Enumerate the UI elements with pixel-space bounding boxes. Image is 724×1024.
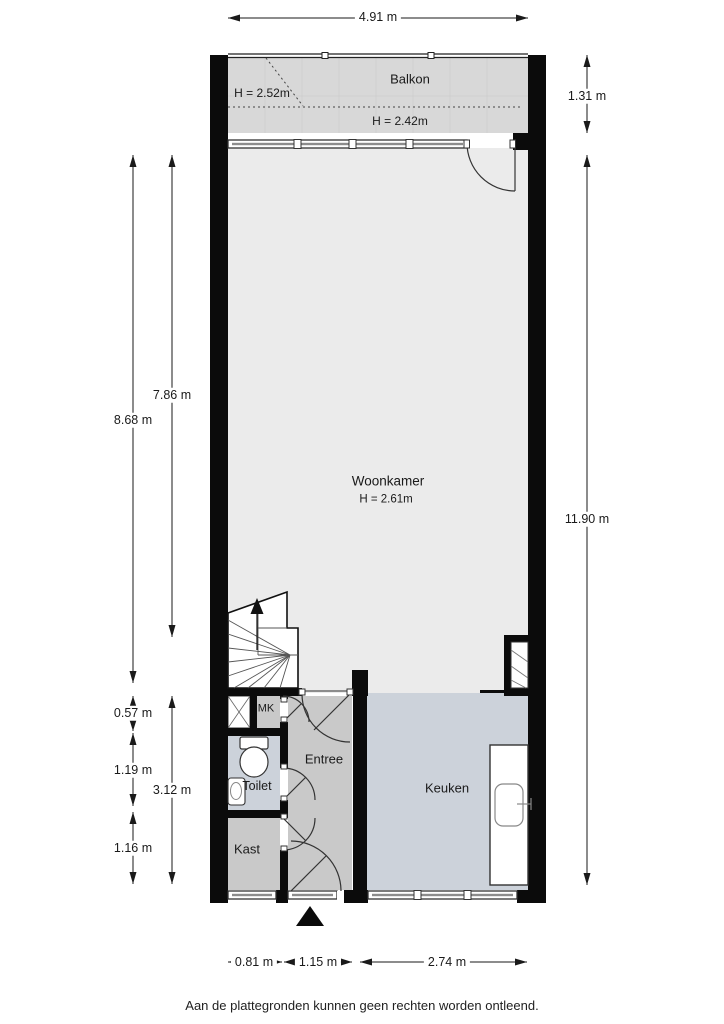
dim-entree-width: 1.15 m [295,955,341,970]
room-label-balkon: Balkon [390,73,430,86]
window-top [228,140,467,149]
dim-lower-total: 3.12 m [149,783,195,798]
shaft-hatch [511,642,528,688]
window-bottom-kast [228,891,276,899]
floor-plan-canvas [0,0,724,1024]
balkon-height-upper: H = 2.52m [234,87,290,99]
dim-kast-width: 0.81 m [231,955,277,970]
understair-niche [228,696,250,728]
wall-mk-divider [250,693,257,728]
wall-bottom-b [276,890,288,903]
window-bottom-keuken [368,891,517,900]
dim-left-total: 8.68 m [110,413,156,428]
room-label-entree: Entree [305,753,343,766]
room-label-mk: MK [258,704,275,715]
kitchen-counter [490,745,531,885]
room-label-kast: Kast [234,843,260,856]
woonkamer-height: H = 2.61m [359,494,412,506]
balkon-height-lower: H = 2.42m [372,115,428,127]
floor-plan-page: 4.91 m 1.31 m 11.90 m 8.68 m 7.86 m 0.57… [0,0,724,1024]
wall-left [210,55,228,903]
wall-bottom-a [210,890,228,903]
wall-entree-left-b [280,722,288,768]
disclaimer-text: Aan de plattegronden kunnen geen rechten… [185,998,538,1013]
room-label-woonkamer: Woonkamer [352,474,425,488]
entrance-marker-triangle [296,906,324,926]
wall-toilet-top [210,728,288,736]
dim-total-height: 11.90 m [561,512,613,527]
kitchen-sink [495,784,523,826]
wall-toilet-kast [210,810,288,818]
wall-entree-left-d [280,850,288,890]
wall-entree-keuken [353,693,367,890]
window-bottom-entree [288,891,344,900]
room-label-keuken: Keuken [425,782,469,795]
wall-keuken-top-line [480,690,506,693]
dim-top-width: 4.91 m [355,10,401,25]
dim-kast-depth: 1.16 m [110,841,156,856]
dim-toilet-depth: 1.19 m [110,763,156,778]
wall-shaft-top [504,635,546,642]
balcony-railing [228,53,528,59]
wall-stair-bottom [228,688,302,696]
wall-shaft-bottom [504,688,546,696]
toilet-fixture [240,737,268,777]
wall-right [528,55,546,903]
wall-entree-keuken-top [352,670,368,696]
dim-mk-depth: 0.57 m [110,706,156,721]
dim-left-inner: 7.86 m [149,388,195,403]
wall-bottom-d [517,890,546,903]
dim-keuken-width: 2.74 m [424,955,470,970]
wall-bottom-c [344,890,368,903]
dim-balkon-depth: 1.31 m [564,89,610,104]
wall-shaft-left [504,642,511,695]
entree-floor [288,696,352,890]
room-label-toilet: Toilet [242,780,271,793]
